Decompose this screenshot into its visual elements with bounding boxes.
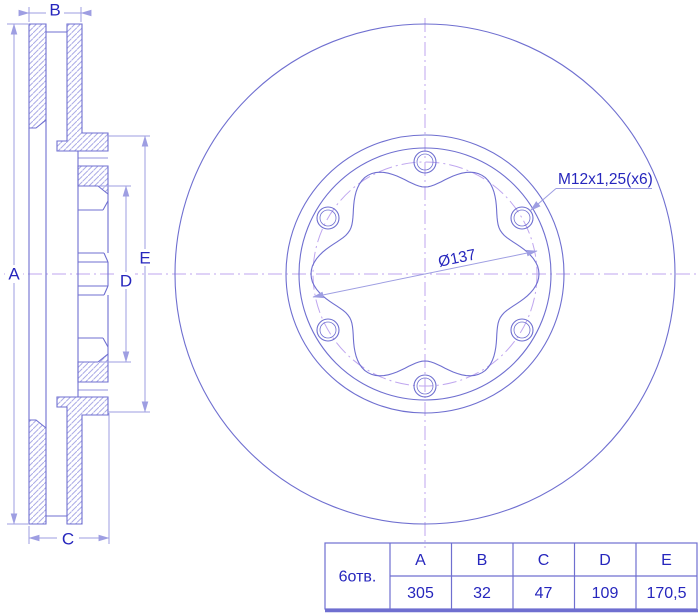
- outboard-plate-bottom: [29, 420, 46, 524]
- dim-label-d: D: [120, 272, 132, 291]
- table-value-a: 305: [407, 585, 434, 602]
- table-value-c: 47: [535, 585, 553, 602]
- brake-disc-technical-drawing: A B C D E Ø137 M12x1,25(x6): [0, 0, 700, 613]
- drawing-canvas: A B C D E Ø137 M12x1,25(x6): [0, 0, 700, 613]
- table-value-e: 170,5: [646, 585, 686, 602]
- dim-label-a: A: [8, 265, 20, 284]
- table-value-d: 109: [592, 585, 619, 602]
- inboard-plate-and-flange-bottom: [57, 397, 108, 524]
- thread-annotation: M12x1,25(x6): [531, 171, 653, 211]
- dim-label-e: E: [139, 249, 150, 268]
- dim-label-c: C: [62, 530, 74, 549]
- flange-band-top: [78, 166, 108, 194]
- inboard-plate-and-flange-top: [57, 24, 108, 151]
- table-header-e: E: [661, 552, 672, 569]
- flange-band-bottom: [78, 354, 108, 382]
- table-header-c: C: [538, 552, 550, 569]
- table-value-b: 32: [473, 585, 491, 602]
- outboard-plate-top: [29, 24, 46, 128]
- table-header-a: A: [415, 552, 426, 569]
- leader-line: [531, 189, 557, 211]
- bolt-hole: [511, 207, 533, 229]
- thread-label: M12x1,25(x6): [558, 171, 653, 188]
- bore-diameter-label: Ø137: [437, 246, 478, 270]
- table-header-d: D: [599, 552, 611, 569]
- table-holes-cell: 6отв.: [339, 569, 377, 586]
- dim-label-b: B: [49, 1, 60, 20]
- table-header-row: A B C D E: [415, 552, 672, 569]
- table-value-row: 305 32 47 109 170,5: [407, 585, 686, 602]
- dimension-table: 6отв. A B C D E 305 32 47 109 170,5: [325, 543, 698, 611]
- table-header-b: B: [477, 552, 488, 569]
